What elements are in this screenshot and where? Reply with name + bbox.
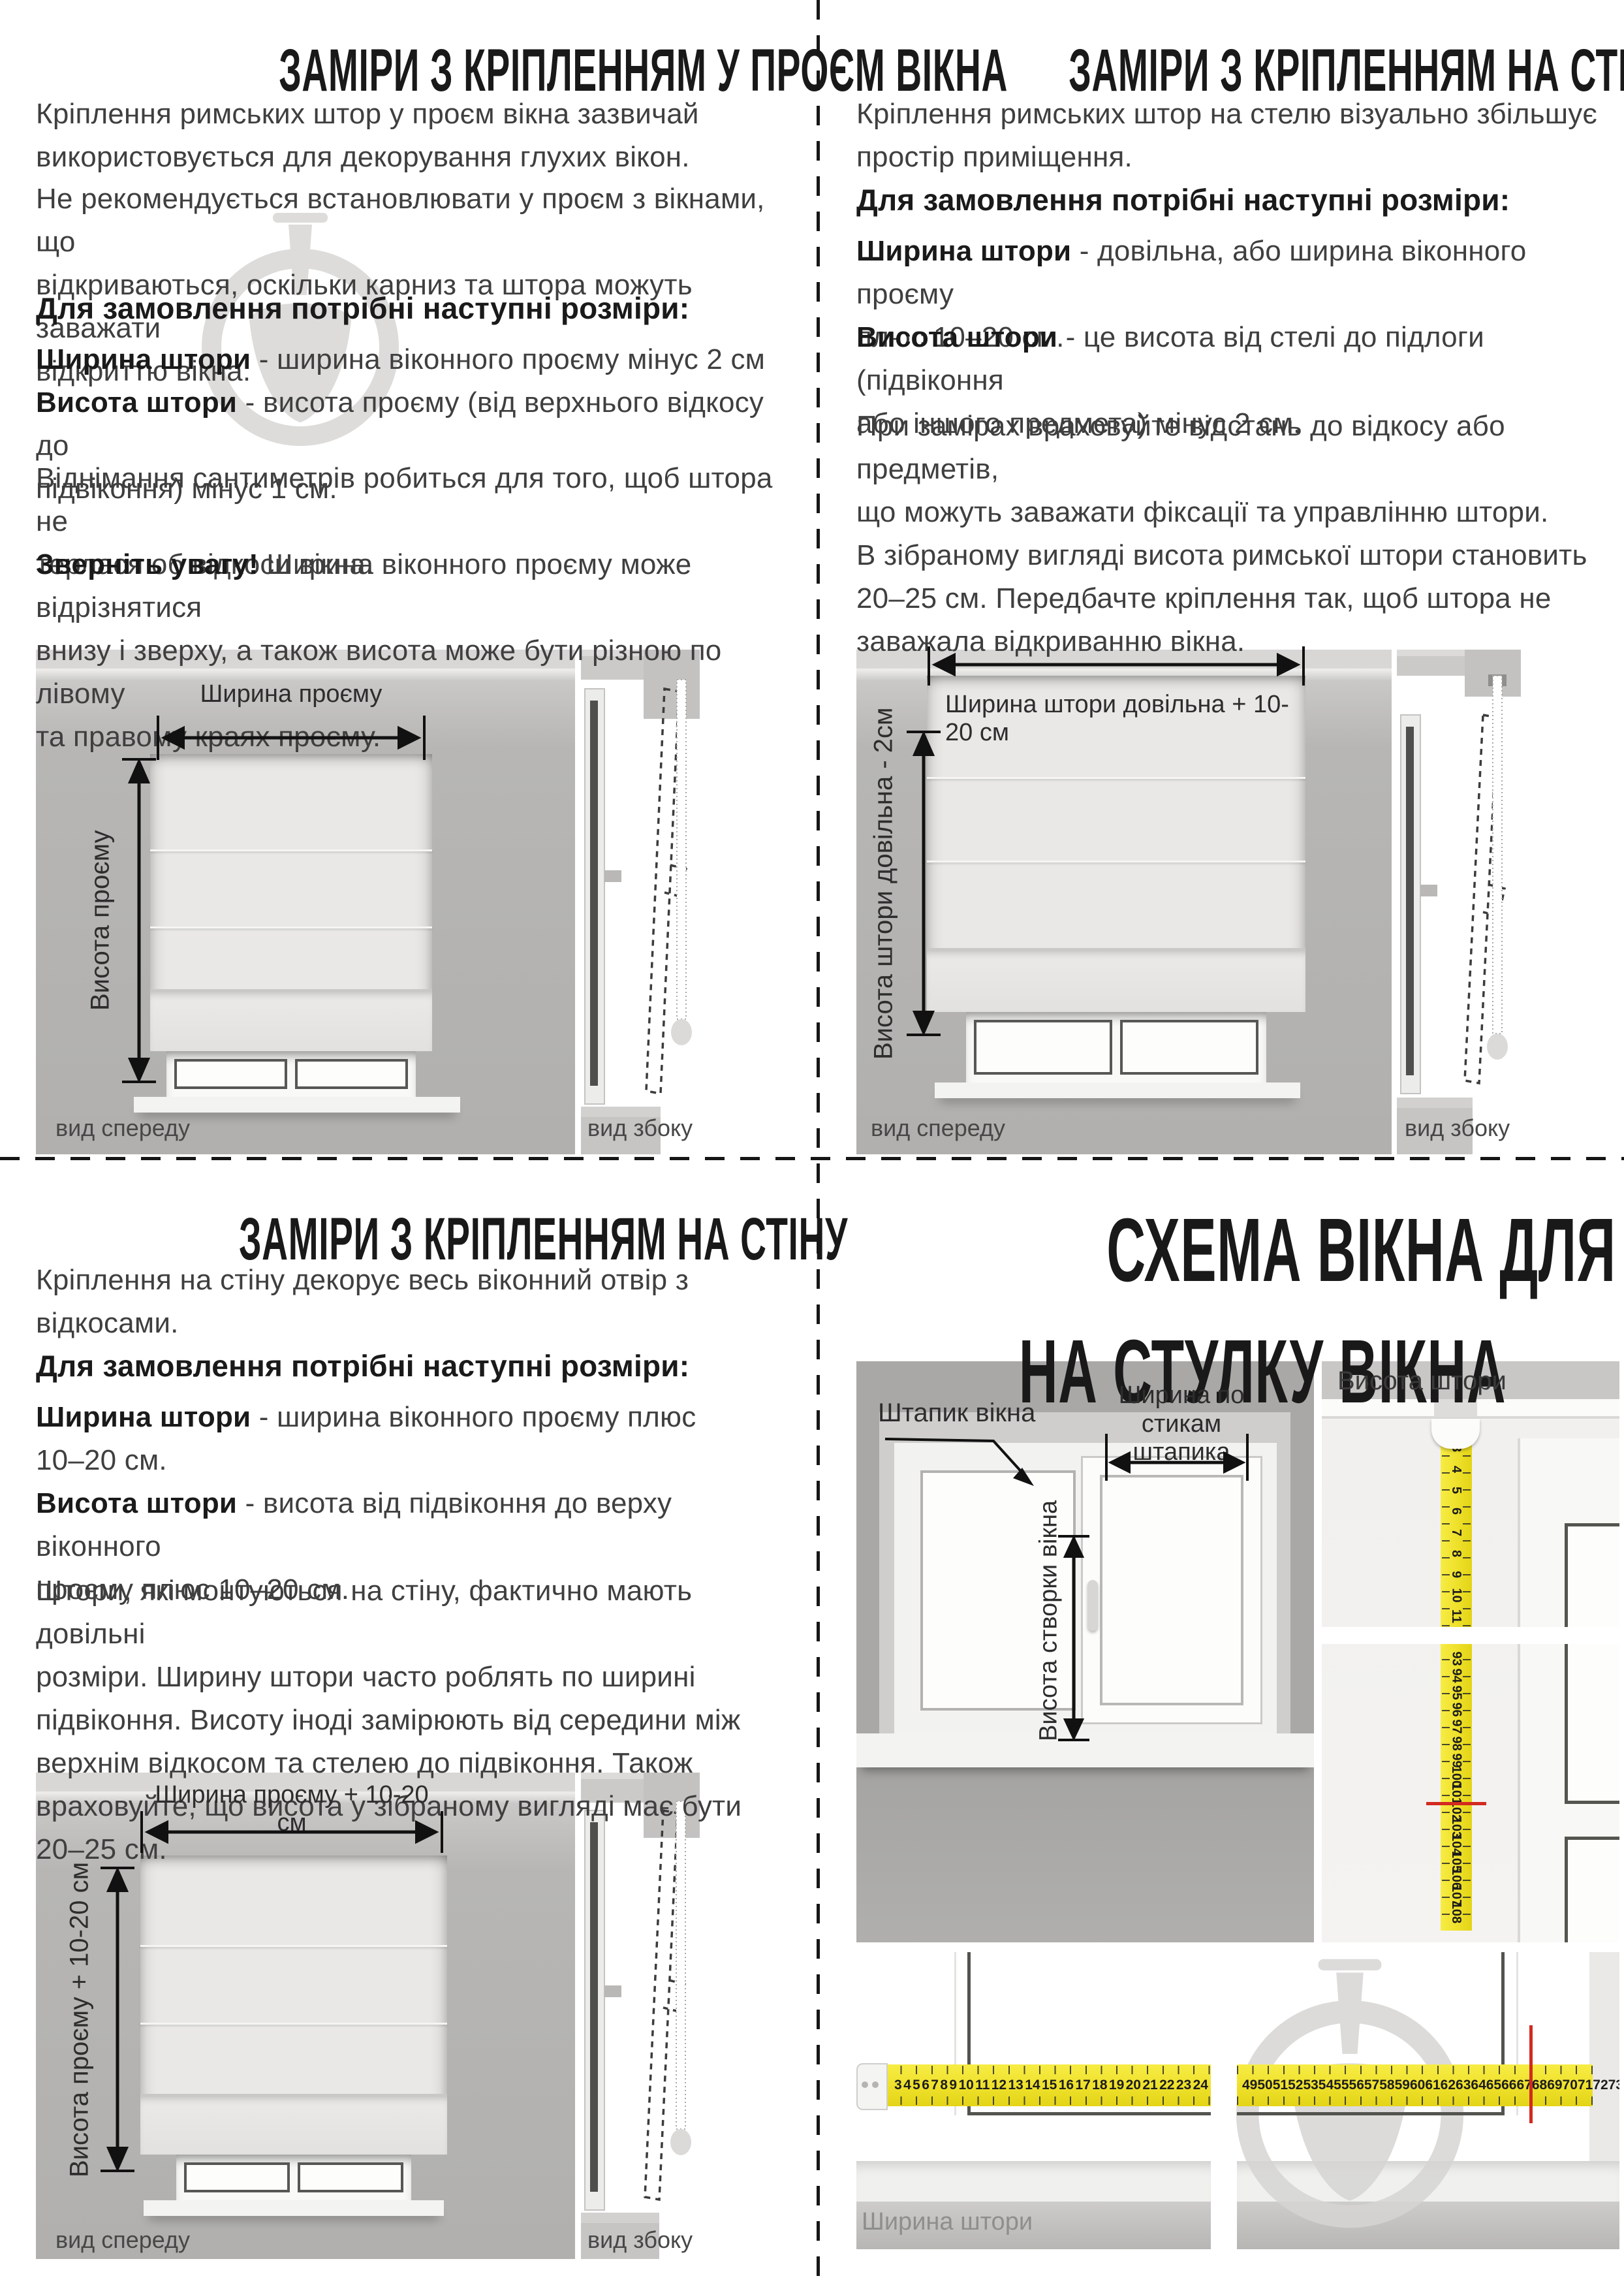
front-view-caption: вид спереду [871,1114,1005,1142]
tape-number: 8 [1449,1550,1464,1557]
side-view-caption: вид збоку [1405,1114,1510,1142]
window-sill [144,2200,444,2216]
tape-number: 15 [1042,2078,1057,2093]
tape-number: 7 [1449,1528,1464,1536]
tape-number: 13 [1008,2078,1023,2093]
tape-number: 10 [958,2078,973,2093]
tape-number: 57 [1364,2078,1379,2093]
tape-number: 60 [1410,2078,1425,2093]
tape-number: 9 [949,2078,957,2093]
tape-number: 58 [1379,2078,1394,2093]
tape-number: 21 [1142,2078,1157,2093]
height-measure-arrow [905,730,942,1037]
height-measure-arrow [99,1866,136,2173]
width-measure-arrow [140,1811,444,1853]
photo-split-gap [1322,1627,1619,1644]
tape-number-list: 4950515253545556575859606162636465666768… [1242,2064,1587,2106]
tape-number: 95 [1449,1685,1464,1699]
tape-number: 14 [1025,2078,1040,2093]
order-sizes-heading: Для замовлення потрібні наступні розміри… [36,286,803,331]
tape-number: 59 [1395,2078,1410,2093]
side-view-diagram-ceiling [1397,650,1521,1154]
window [166,1051,416,1097]
red-measure-mark [1529,2025,1533,2123]
paragraph: Кріплення римських штор у проєм вікна за… [36,93,803,179]
tape-number: 51 [1273,2078,1288,2093]
bead-width-arrow [1104,1434,1249,1481]
glass-seal [1237,2112,1501,2115]
tape-number: 7 [931,2078,939,2093]
height-arrow-label: Висота проєму + 10-20 см [61,1866,98,2173]
window [966,1012,1266,1082]
paragraph: При замірах враховуйте відстань до відко… [856,405,1614,663]
size-definition: Ширина штори - ширина віконного проєму м… [36,338,803,381]
height-measure-arrow [121,757,157,1084]
vertical-tape: 34567891011 9394959697989910010110210310… [1441,1421,1472,1931]
size-definition: Ширина штори - ширина віконного проєму п… [36,1396,803,1482]
tape-number: 71 [1578,2078,1593,2093]
height-arrow-label: Висота штори довільна - 2см [866,730,902,1037]
tape-number: 4 [903,2078,911,2093]
tape-number: 6 [1449,1508,1464,1515]
curtain-width-photo-left: 3456789101112131415161718192021222324 Ши… [856,1952,1211,2249]
tape-number: 20 [1126,2078,1141,2093]
tape-number: 56 [1349,2078,1364,2093]
width-arrow-label: Ширина проєму [150,680,432,708]
front-view-caption: вид спереду [55,2226,190,2254]
window-frame-profile [1518,1438,1619,1942]
roman-blind [150,754,432,1051]
right-sash [1081,1456,1262,1724]
tape-number: 5 [913,2078,920,2093]
tape-number: 72 [1593,2078,1608,2093]
width-arrow-label: Ширина штори довільна + 10-20 см [945,691,1311,747]
tape-number: 11 [1449,1609,1464,1623]
tape-number: 65 [1486,2078,1501,2093]
tape-number: 18 [1092,2078,1107,2093]
horizontal-tape: 3456789101112131415161718192021222324 [885,2064,1211,2106]
wall-below-sill [856,1767,1314,1942]
tape-number: 94 [1449,1668,1464,1683]
tape-number: 4 [1449,1466,1464,1473]
width-measure-arrow [156,716,426,760]
glass-seal [967,2112,1211,2115]
tape-number: 3 [894,2078,902,2093]
tape-number: 55 [1334,2078,1349,2093]
tape-number: 62 [1441,2078,1456,2093]
instruction-sheet: ЗАМІРИ З КРІПЛЕННЯМ У ПРОЄМ ВІКНА Кріпле… [0,0,1624,2291]
front-view-caption: вид спереду [55,1114,190,1142]
tape-number: 63 [1456,2078,1471,2093]
red-measure-mark [1426,1802,1486,1805]
curtain-height-photo: 34567891011 9394959697989910010110210310… [1322,1399,1619,1942]
bead-label: Штапик вікна [878,1398,1035,1428]
horizontal-cut-line [0,1157,1624,1160]
tape-number: 54 [1319,2078,1334,2093]
tape-number: 70 [1563,2078,1578,2093]
tape-number: 53 [1303,2078,1318,2093]
height-arrow-label: Висота проєму [82,757,119,1084]
paragraph: Кріплення на стіну декорує весь віконний… [36,1259,803,1345]
tape-number: 9 [1449,1571,1464,1578]
side-view-caption: вид збоку [587,1114,693,1142]
tape-number: 11 [975,2078,990,2093]
paragraph: Кріплення римських штор на стелю візуаль… [856,93,1614,179]
window-sill [134,1097,460,1113]
tape-number: 52 [1288,2078,1303,2093]
tape-number: 68 [1532,2078,1547,2093]
window-sill [856,2161,1211,2202]
side-view-caption: вид збоку [587,2226,693,2254]
tape-number: 17 [1075,2078,1090,2093]
tape-number: 61 [1425,2078,1440,2093]
tape-number: 10 [1449,1588,1464,1602]
tape-number: 19 [1109,2078,1124,2093]
width-measure-arrow [927,646,1305,686]
tape-number: 97 [1449,1719,1464,1733]
window-sill [935,1082,1300,1098]
sash-height-arrow [1055,1534,1092,1742]
tape-number: 108 [1449,1902,1464,1923]
curtain-width-caption: Ширина штори [862,2208,1033,2236]
tape-number: 24 [1193,2078,1208,2093]
vertical-cut-line [817,0,820,2291]
window [176,2155,411,2200]
tape-number: 98 [1449,1736,1464,1750]
tape-number: 93 [1449,1651,1464,1666]
tape-hook [856,2063,888,2110]
roman-blind [140,1856,447,2155]
tape-bracket [1431,1419,1480,1449]
bead-leader-arrow [882,1435,1042,1491]
tape-number: 96 [1449,1702,1464,1716]
tape-number: 22 [1159,2078,1174,2093]
tape-number: 64 [1471,2078,1486,2093]
tape-number-list: 3456789101112131415161718192021222324 [894,2064,1208,2106]
tape-number-list: 34567891011 [1441,1441,1472,1624]
tape-number: 66 [1501,2078,1516,2093]
curtain-height-label: Висота штори [1337,1367,1507,1396]
order-sizes-heading: Для замовлення потрібні наступні розміри… [856,178,1614,223]
tape-number: 8 [940,2078,948,2093]
tape-number: 5 [1449,1487,1464,1494]
tape-number: 12 [992,2078,1007,2093]
order-sizes-heading: Для замовлення потрібні наступні розміри… [36,1344,803,1389]
tape-number: 16 [1059,2078,1074,2093]
tape-number: 69 [1547,2078,1562,2093]
tape-number: 50 [1257,2078,1272,2093]
tape-number: 49 [1242,2078,1257,2093]
horizontal-tape: 4950515253545556575859606162636465666768… [1237,2064,1593,2106]
tape-number: 6 [922,2078,929,2093]
tape-number-list: 9394959697989910010110210310410510610710… [1441,1651,1472,1920]
tape-number: 73 [1608,2078,1619,2093]
tape-number: 23 [1176,2078,1191,2093]
tape-number: 99 [1449,1753,1464,1767]
